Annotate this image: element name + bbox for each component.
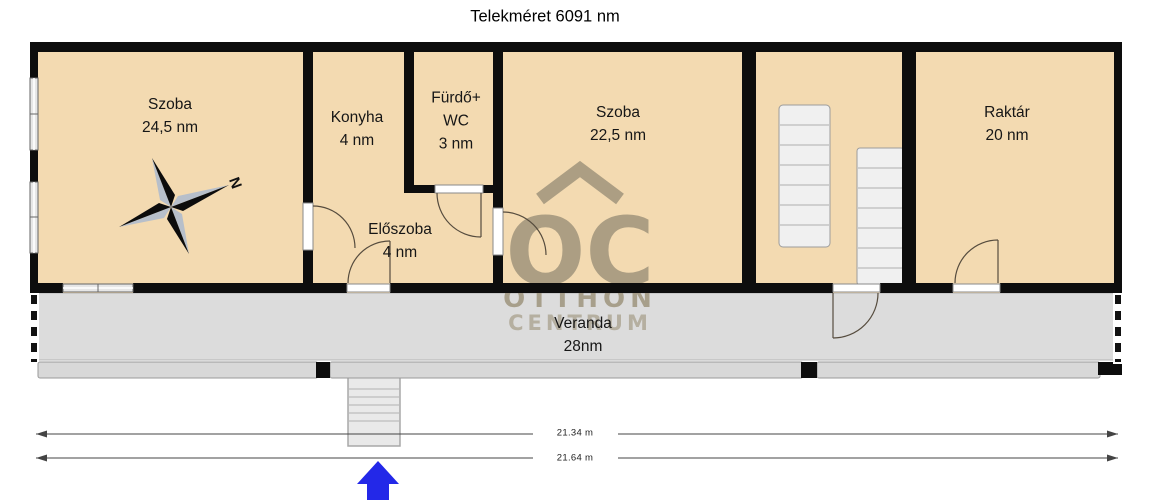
room-name: Szoba	[590, 101, 646, 124]
room-label-raktar: Raktár 20 nm	[984, 101, 1030, 147]
room-label-veranda: Veranda 28nm	[554, 312, 612, 358]
wall-szoba-konyha	[303, 52, 313, 203]
room-area: 3 nm	[431, 133, 481, 156]
room-label-eloszoba: Előszoba 4 nm	[368, 218, 432, 264]
room-name: Raktár	[984, 101, 1030, 124]
floor-plan: OC OTTHON CENTRUM	[0, 0, 1162, 500]
staircase-right	[857, 148, 904, 285]
page-title: Telekméret 6091 nm	[470, 8, 620, 27]
entrance-arrow-icon	[357, 461, 399, 500]
wall-konyha-furdo	[404, 52, 414, 193]
wall-szoba2-stairs	[742, 52, 756, 283]
room-name: Fürdő+	[431, 87, 481, 110]
window-bottom	[63, 284, 133, 292]
room-label-konyha: Konyha 4 nm	[331, 106, 384, 152]
room-area: 20 nm	[984, 124, 1030, 147]
ledge-post	[801, 362, 817, 378]
room-label-szoba-2: Szoba 22,5 nm	[590, 101, 646, 147]
wall-eloszoba-szoba2	[493, 52, 503, 208]
dimension-label-inner: 21.34 m	[557, 428, 593, 439]
room-label-szoba-1: Szoba 24,5 nm	[142, 93, 198, 139]
wall-right	[1114, 42, 1122, 293]
room-name: Előszoba	[368, 218, 432, 241]
wall-top	[30, 42, 1122, 52]
room-name: Veranda	[554, 312, 612, 335]
entrance-steps	[348, 374, 400, 446]
floor-plan-graphics: OC OTTHON CENTRUM	[0, 0, 1162, 500]
wall-stairs-raktar	[902, 52, 916, 283]
room-area: 28nm	[554, 335, 612, 358]
staircase-left	[779, 105, 830, 247]
room-area: 24,5 nm	[142, 116, 198, 139]
room-name: Konyha	[331, 106, 384, 129]
veranda-ledge	[38, 362, 1122, 378]
ledge-post	[316, 362, 330, 378]
dimension-label-outer: 21.64 m	[557, 453, 593, 464]
room-area: 4 nm	[368, 241, 432, 264]
window-left-lower	[30, 182, 38, 253]
room-name: WC	[431, 110, 481, 133]
room-name: Szoba	[142, 93, 198, 116]
room-label-furdo-wc: Fürdő+ WC 3 nm	[431, 87, 481, 156]
window-left-upper	[30, 78, 38, 150]
room-area: 4 nm	[331, 129, 384, 152]
room-area: 22,5 nm	[590, 124, 646, 147]
